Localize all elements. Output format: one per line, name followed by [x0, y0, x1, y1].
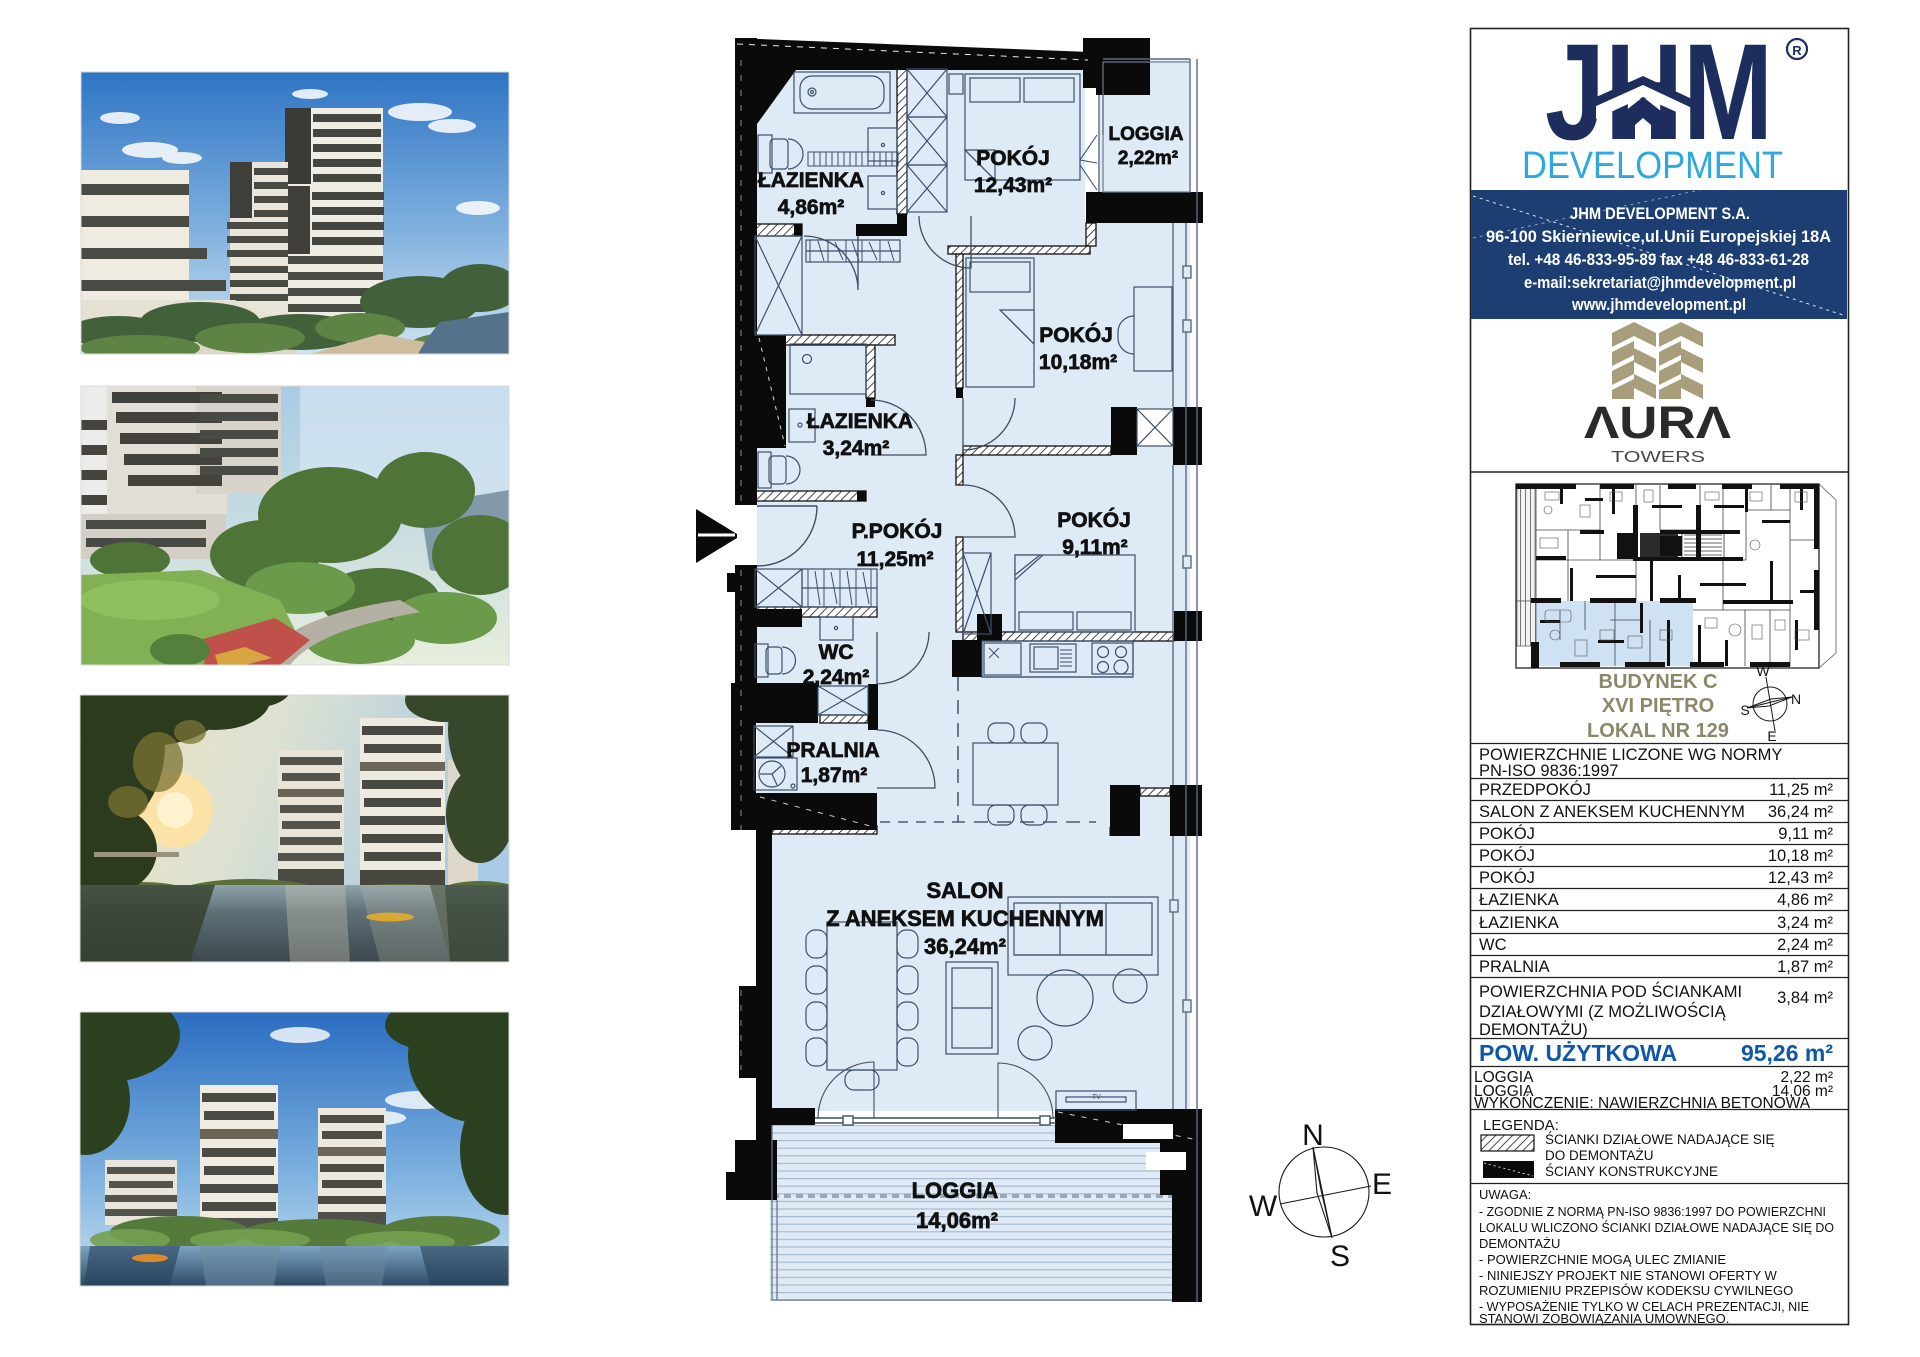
svg-text:ŁAZIENKA: ŁAZIENKA: [1479, 891, 1559, 909]
svg-text:2,22m²: 2,22m²: [1118, 148, 1178, 169]
svg-text:- POWIERZCHNIE MOGĄ ULEC ZMIAN: - POWIERZCHNIE MOGĄ ULEC ZMIANIE: [1479, 1252, 1726, 1267]
svg-text:ŚCIANKI DZIAŁOWE NADAJĄCE SIĘ: ŚCIANKI DZIAŁOWE NADAJĄCE SIĘ: [1545, 1132, 1775, 1147]
svg-text:DEMONTAŻU: DEMONTAŻU: [1479, 1236, 1560, 1251]
svg-text:14,06m²: 14,06m²: [916, 1208, 998, 1233]
svg-text:PRALNIA: PRALNIA: [786, 739, 879, 762]
svg-text:11,25 m²: 11,25 m²: [1769, 781, 1833, 799]
svg-text:12,43m²: 12,43m²: [974, 174, 1052, 197]
svg-text:TV: TV: [1092, 1094, 1101, 1101]
svg-text:- NINIEJSZY PROJEKT NIE STANOW: - NINIEJSZY PROJEKT NIE STANOWI OFERTY W: [1479, 1268, 1778, 1283]
svg-text:tel. +48 46-833-95-89 fax +4: tel. +48 46-833-95-89 fax +48 46-833-61-…: [1508, 250, 1809, 269]
svg-text:P.POKÓJ: P.POKÓJ: [852, 519, 943, 543]
svg-text:DO DEMONTAŻU: DO DEMONTAŻU: [1545, 1148, 1654, 1163]
svg-text:ΛURΛ: ΛURΛ: [1584, 397, 1731, 448]
svg-text:N: N: [1302, 1119, 1324, 1152]
svg-text:S: S: [1330, 1240, 1350, 1273]
svg-text:e-mail:sekretariat@jhmdevelopm: e-mail:sekretariat@jhmdevelopment.pl: [1524, 273, 1796, 292]
svg-text:36,24m²: 36,24m²: [924, 934, 1006, 959]
svg-text:POKÓJ: POKÓJ: [976, 146, 1050, 170]
svg-text:STANOWI ZOBOWIĄZANIA UMOWNEGO.: STANOWI ZOBOWIĄZANIA UMOWNEGO.: [1479, 1311, 1729, 1326]
svg-text:PN-ISO 9836:1997: PN-ISO 9836:1997: [1479, 762, 1618, 780]
svg-text:9,11m²: 9,11m²: [1062, 536, 1127, 559]
svg-text:W: W: [1249, 1190, 1278, 1223]
svg-text:1,87 m²: 1,87 m²: [1777, 958, 1833, 976]
svg-text:BUDYNEK C: BUDYNEK C: [1599, 671, 1718, 693]
svg-text:DEVELOPMENT: DEVELOPMENT: [1522, 145, 1783, 187]
svg-text:www.jhmdevelopment.pl: www.jhmdevelopment.pl: [1571, 295, 1746, 314]
svg-text:Z ANEKSEM KUCHENNYM: Z ANEKSEM KUCHENNYM: [826, 906, 1104, 931]
svg-text:POKÓJ: POKÓJ: [1479, 824, 1535, 843]
svg-text:3,24 m²: 3,24 m²: [1777, 914, 1833, 932]
svg-text:POKÓJ: POKÓJ: [1479, 868, 1535, 887]
svg-text:POKÓJ: POKÓJ: [1057, 508, 1131, 532]
svg-text:36,24 m²: 36,24 m²: [1768, 803, 1834, 821]
svg-text:XVI PIĘTRO: XVI PIĘTRO: [1602, 695, 1714, 717]
svg-text:ŚCIANY KONSTRUKCYJNE: ŚCIANY KONSTRUKCYJNE: [1545, 1164, 1718, 1179]
svg-text:14,06 m²: 14,06 m²: [1772, 1083, 1833, 1100]
svg-text:E: E: [1767, 728, 1776, 744]
svg-text:ŁAZIENKA: ŁAZIENKA: [758, 169, 864, 192]
svg-text:10,18m²: 10,18m²: [1039, 351, 1117, 374]
svg-text:WYKOŃCZENIE: NAWIERZCHNIA BETO: WYKOŃCZENIE: NAWIERZCHNIA BETONOWA: [1474, 1095, 1811, 1112]
svg-text:95,26 m²: 95,26 m²: [1741, 1040, 1833, 1066]
svg-text:9,11 m²: 9,11 m²: [1778, 825, 1833, 843]
svg-text:LOKAL NR 129: LOKAL NR 129: [1587, 720, 1729, 742]
svg-text:S: S: [1740, 702, 1749, 718]
svg-text:4,86 m²: 4,86 m²: [1777, 891, 1833, 909]
svg-text:TOWERS: TOWERS: [1611, 449, 1705, 466]
svg-text:R: R: [1792, 43, 1802, 58]
svg-text:POKÓJ: POKÓJ: [1039, 323, 1113, 347]
svg-text:3,24m²: 3,24m²: [823, 437, 890, 460]
svg-text:LOGGIA: LOGGIA: [912, 1178, 999, 1203]
svg-text:ROZUMIENIU PRZEPISÓW KODEKSU C: ROZUMIENIU PRZEPISÓW KODEKSU CYWILNEGO: [1479, 1283, 1793, 1298]
svg-text:2,24m²: 2,24m²: [803, 666, 870, 689]
svg-text:JHM DEVELOPMENT S.A.: JHM DEVELOPMENT S.A.: [1570, 204, 1750, 223]
svg-text:3,84 m²: 3,84 m²: [1777, 989, 1833, 1007]
svg-text:DZIAŁOWYMI (Z MOŻLIWOŚCIĄ: DZIAŁOWYMI (Z MOŻLIWOŚCIĄ: [1479, 1002, 1727, 1021]
svg-text:SALON: SALON: [927, 878, 1004, 903]
svg-text:96-100 Skierniewice,ul.Unii Eu: 96-100 Skierniewice,ul.Unii Europejskiej…: [1486, 227, 1831, 246]
svg-text:SALON Z ANEKSEM KUCHENNYM: SALON Z ANEKSEM KUCHENNYM: [1479, 803, 1745, 821]
svg-text:W: W: [1756, 663, 1770, 679]
svg-text:E: E: [1372, 1168, 1392, 1201]
svg-text:ŁAZIENKA: ŁAZIENKA: [807, 410, 913, 433]
svg-text:PRALNIA: PRALNIA: [1479, 958, 1550, 976]
svg-text:11,25m²: 11,25m²: [856, 548, 933, 571]
svg-text:10,18 m²: 10,18 m²: [1768, 847, 1834, 865]
svg-text:LOKALU WLICZONO ŚCIANKI DZIAŁO: LOKALU WLICZONO ŚCIANKI DZIAŁOWE NADAJĄC…: [1479, 1220, 1834, 1235]
svg-text:ŁAZIENKA: ŁAZIENKA: [1479, 914, 1559, 932]
svg-text:- ZGODNIE Z NORMĄ PN-ISO 9836:: - ZGODNIE Z NORMĄ PN-ISO 9836:1997 DO PO…: [1479, 1204, 1826, 1219]
svg-text:PRZEDPOKÓJ: PRZEDPOKÓJ: [1479, 780, 1591, 799]
svg-text:UWAGA:: UWAGA:: [1479, 1187, 1531, 1202]
svg-text:WC: WC: [1479, 936, 1507, 954]
svg-text:12,43 m²: 12,43 m²: [1768, 869, 1834, 887]
svg-text:N: N: [1791, 691, 1801, 707]
svg-text:1,87m²: 1,87m²: [801, 764, 868, 787]
svg-text:LOGGIA: LOGGIA: [1109, 124, 1184, 145]
svg-text:POW. UŻYTKOWA: POW. UŻYTKOWA: [1479, 1040, 1677, 1066]
svg-text:4,86m²: 4,86m²: [778, 196, 845, 219]
svg-text:DEMONTAŻU): DEMONTAŻU): [1479, 1020, 1588, 1039]
svg-text:WC: WC: [819, 641, 854, 664]
svg-text:2,24 m²: 2,24 m²: [1777, 936, 1833, 954]
svg-text:POKÓJ: POKÓJ: [1479, 846, 1535, 865]
svg-text:POWIERZCHNIA POD ŚCIANKAMI: POWIERZCHNIA POD ŚCIANKAMI: [1479, 982, 1742, 1001]
